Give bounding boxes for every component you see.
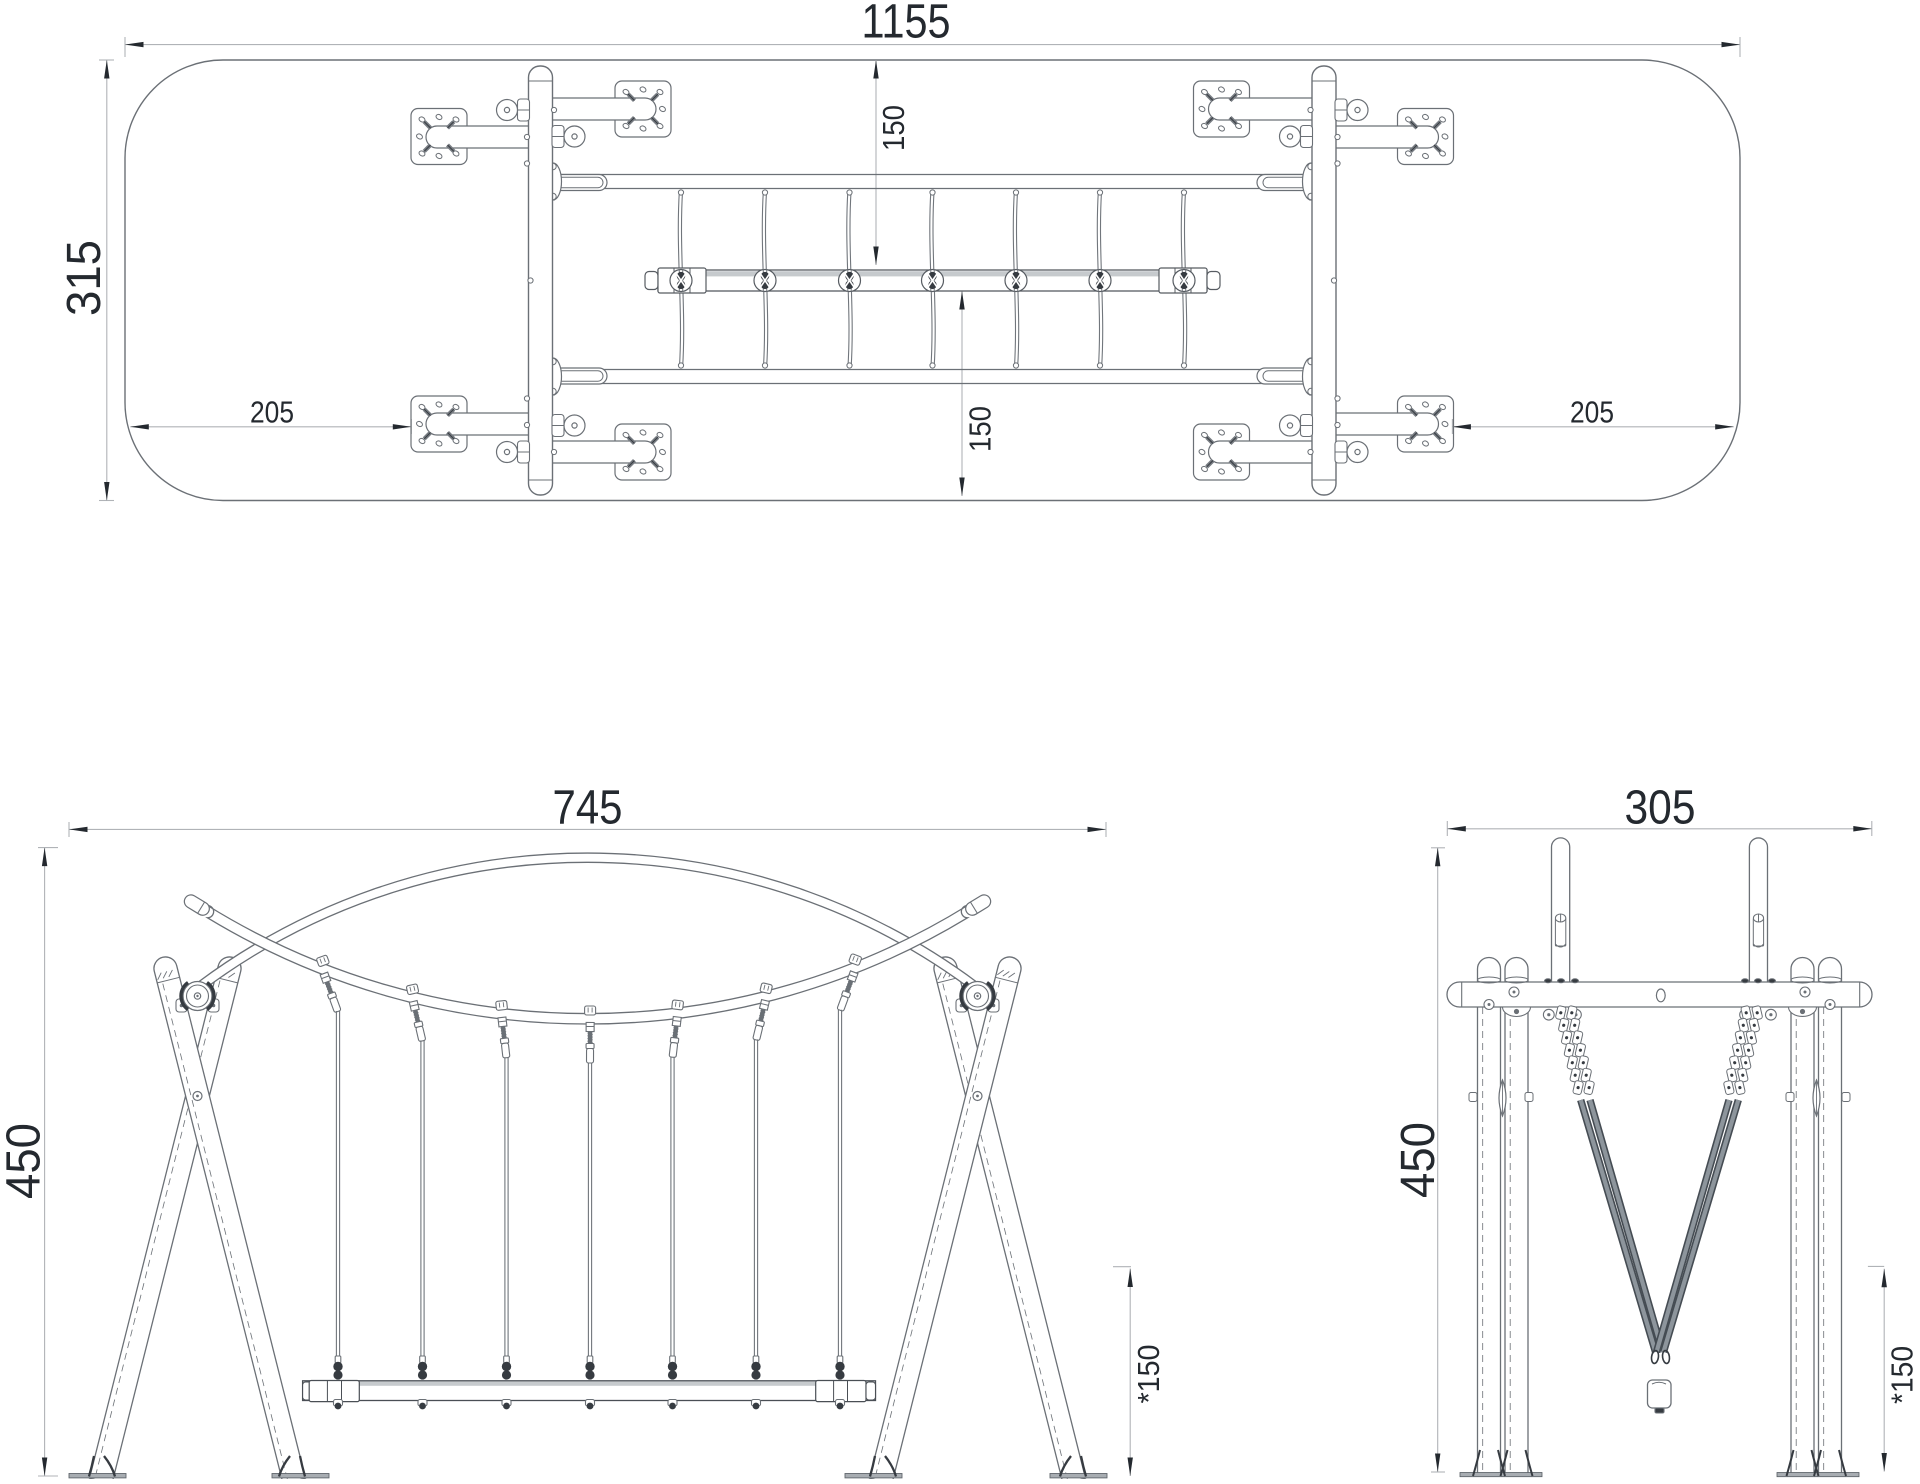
svg-text:150: 150	[876, 105, 911, 151]
svg-text:*150: *150	[1885, 1346, 1920, 1404]
svg-text:*150: *150	[1131, 1345, 1166, 1404]
svg-text:205: 205	[250, 394, 294, 429]
svg-text:315: 315	[58, 240, 111, 316]
svg-text:745: 745	[553, 782, 623, 835]
svg-text:305: 305	[1625, 781, 1696, 834]
svg-text:1155: 1155	[862, 0, 951, 49]
svg-text:450: 450	[1392, 1122, 1445, 1198]
svg-text:150: 150	[963, 406, 998, 452]
svg-text:450: 450	[0, 1123, 51, 1199]
svg-text:205: 205	[1570, 394, 1614, 429]
